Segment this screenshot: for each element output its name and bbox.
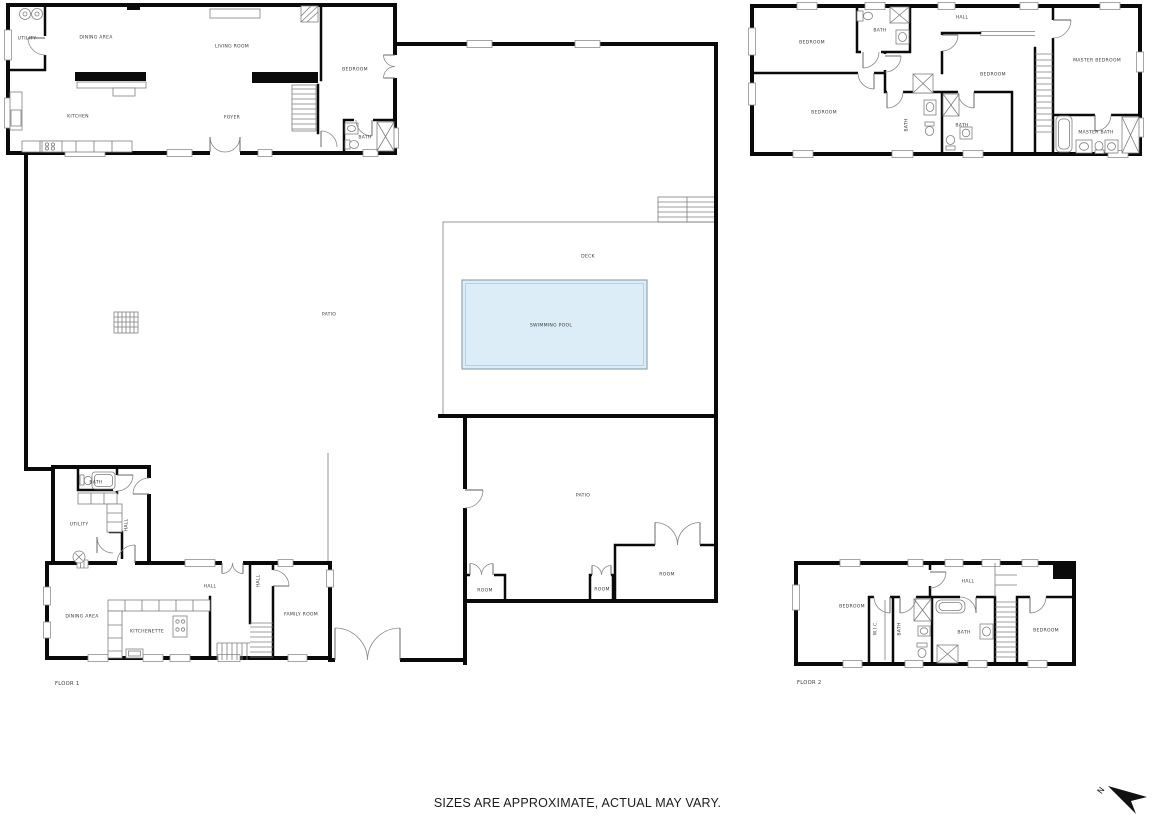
floor-plan-drawing <box>0 0 1155 820</box>
north-arrow: N <box>1090 778 1152 818</box>
patio-features <box>114 312 328 563</box>
disclaimer-text: SIZES ARE APPROXIMATE, ACTUAL MAY VARY. <box>434 796 721 810</box>
floor-plan-canvas: UTILITYDINING AREALIVING ROOMBEDROOMKITC… <box>0 0 1155 820</box>
swimming-pool <box>462 280 647 369</box>
north-label: N <box>1096 785 1107 795</box>
